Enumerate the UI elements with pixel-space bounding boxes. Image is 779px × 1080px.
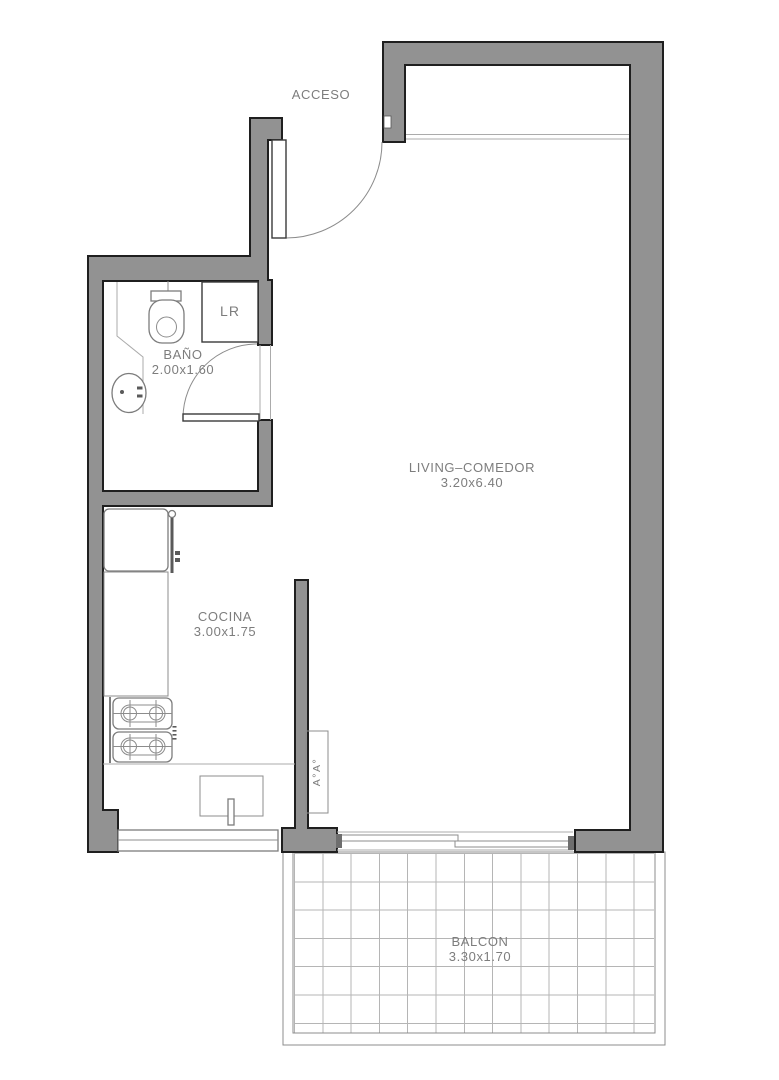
entry-door-leaf [272,140,286,238]
bathroom-door-jambs [260,345,271,420]
living-name: LIVING–COMEDOR [409,460,535,475]
fridge [104,509,168,571]
sliding-door-cap-left [336,834,342,848]
bathroom-door-leaf [183,414,259,421]
closet-lr-label: LR [220,303,240,319]
living-label: LIVING–COMEDOR 3.20x6.40 [409,461,535,491]
entry-label: ACCESO [292,88,351,103]
ac-unit-label: A°A° [306,731,328,813]
stove-knob-3 [173,734,177,736]
bathroom-name: BAÑO [163,347,202,362]
entry-jamb-notch [384,116,391,128]
stove-knob-1 [173,726,177,728]
balcony-dims: 3.30x1.70 [449,949,512,964]
floorplan-drawing [0,0,779,1080]
living-dims: 3.20x6.40 [441,475,504,490]
floorplan-page: ACCESO LR BAÑO 2.00x1.60 LIVING–COMEDOR … [0,0,779,1080]
sliding-door-panel-left [340,835,458,841]
kitchen-faucet [228,799,234,825]
ac-unit-text: A°A° [311,758,323,786]
wall-top-right [383,42,663,852]
sink-tap-top [137,387,143,390]
balcony-label: BALCON 3.30x1.70 [449,935,512,965]
kitchen-dims: 3.00x1.75 [194,624,257,639]
sliding-door-cap-right [568,836,574,850]
ceiling-beam-line [405,135,630,140]
bathroom-sink [112,374,146,413]
balcony-name: BALCON [451,934,508,949]
kitchen-door-handle-2 [175,558,180,562]
sink-drain [120,390,124,394]
sink-tap-bottom [137,395,143,398]
sliding-door-panel-right [455,841,571,847]
entry-door-arc [286,142,382,238]
kitchen-name: COCINA [198,609,252,624]
kitchen-counter [104,572,168,696]
kitchen-door-handle-1 [175,551,180,555]
bathroom-label: BAÑO 2.00x1.60 [152,348,215,378]
stove-knob-4 [173,738,177,740]
kitchen-label: COCINA 3.00x1.75 [194,610,257,640]
kitchen-pivot-hinge [169,511,176,518]
bathroom-dims: 2.00x1.60 [152,362,215,377]
stove-knob-2 [173,730,177,732]
